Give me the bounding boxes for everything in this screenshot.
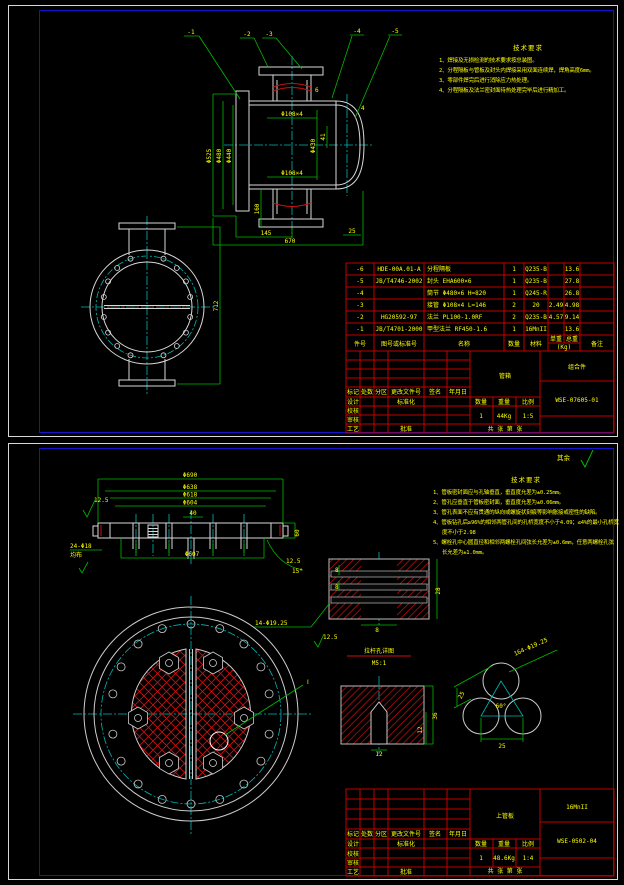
dim-36: 36	[432, 712, 439, 720]
cell-material: Q235-B	[525, 314, 547, 321]
dim-dia-mid: Φ430	[310, 138, 317, 153]
tb-weight: 48.6Kg	[493, 855, 515, 862]
tb-zone: 分区	[375, 388, 387, 396]
tb-audit: 审核	[347, 416, 359, 424]
dim-dia-inner: Φ440	[226, 148, 233, 163]
tb-count: 处数	[361, 388, 373, 396]
tech-item: 2、分程隔板与管板及封头内焊接采用双面连续焊，焊角高度6mm。	[439, 66, 617, 76]
cell-qty: 1	[512, 290, 516, 297]
th-kg: (Kg)	[557, 344, 571, 351]
detail-scale: M5:1	[372, 660, 387, 667]
tb-scale-label: 比例	[522, 398, 534, 406]
cell-total: 9.14	[565, 314, 580, 321]
roughness-12-5: 12.5	[286, 558, 301, 565]
tb-part-name: 上管板	[496, 812, 514, 820]
cell-no: -1	[356, 326, 364, 333]
cell-total: 27.8	[565, 278, 580, 285]
groove-band	[331, 584, 427, 590]
cell-qty: 1	[512, 266, 516, 273]
tb-drawing-no: WSE-0502-04	[557, 838, 597, 845]
table-row: -1 JB/T4701-2000 甲型法兰 RF450-1.6 1 16MnII…	[356, 325, 579, 333]
th-code: 图号或标准号	[381, 340, 417, 348]
cell-material: Q235-B	[525, 266, 547, 273]
cad-canvas: -1 -2 -3 -4 -5 Φ525 Φ480 Φ440 Φ108×4 Φ10…	[0, 0, 624, 885]
groove-band	[331, 597, 427, 603]
cell-total: 13.6	[565, 266, 580, 273]
dim-dia-shell: Φ480	[216, 148, 223, 163]
th-no: 件号	[354, 340, 366, 348]
th-note: 备注	[591, 340, 603, 348]
cell-qty: 2	[512, 314, 516, 321]
cell-total: 4.98	[565, 302, 580, 309]
detail-mark: Ⅰ	[307, 679, 309, 686]
tb-date: 年月日	[449, 830, 467, 838]
callout-2: -2	[243, 31, 251, 38]
dim-8: 8	[335, 584, 339, 591]
tb-scale-label: 比例	[522, 840, 534, 848]
tb-check: 校核	[347, 850, 359, 858]
th-name: 名称	[458, 340, 470, 348]
tb-standard: 标准化	[397, 398, 415, 406]
label-bolt-holes-spread: 均布	[70, 551, 82, 559]
dim-dia-604: Φ604	[183, 500, 198, 507]
table-row: -6 HDE-00A.01-A 分程隔板 1 Q235-B 13.6	[356, 265, 579, 273]
roughness-12-5: 12.5	[94, 497, 109, 504]
dim-28: 28	[435, 587, 442, 595]
th-unit: 单重	[550, 335, 562, 343]
tb-date: 年月日	[449, 388, 467, 396]
table-row: -4 筒节 Φ480×6 H=820 1 Q245-R 26.8	[356, 289, 579, 297]
dim-dia-607: Φ607	[185, 551, 200, 558]
label-rod-holes: 14-Φ19.25	[255, 620, 288, 627]
dim-25: 25	[348, 228, 356, 235]
tech-item: 5、螺栓孔中心圆直径和相邻两螺栓孔间弦长允差为±0.6mm，任意两螺栓孔弦长允差…	[433, 538, 619, 558]
th-material: 材料	[530, 340, 542, 348]
cell-total: 26.8	[565, 290, 580, 297]
cell-qty: 1	[512, 326, 516, 333]
tb-mark: 标记	[347, 830, 359, 838]
tb-qty: 1	[479, 413, 483, 420]
dim-nozzle-bottom: Φ108×4	[281, 170, 303, 177]
dim-145: 145	[261, 230, 272, 237]
tech-item: 4、分程隔板及法兰密封面待热处理完毕后进行精加工。	[439, 86, 617, 96]
dim-nozzle-height: 160	[254, 203, 261, 214]
callout-4: -4	[353, 28, 361, 35]
cell-no: -6	[356, 266, 364, 273]
tb-weight: 44Kg	[497, 413, 512, 420]
cell-name: 甲型法兰 RF450-1.6	[427, 325, 488, 333]
cell-material: Q245-R	[525, 290, 547, 297]
partition-groove-detail: 36 12 12	[341, 686, 439, 758]
tb-process: 工艺	[347, 868, 359, 876]
tech-item: 2、管孔应垂直于管板密封面，垂直度允差为±0.06mm。	[433, 498, 619, 508]
tb-pages: 共 张 第 张	[488, 867, 523, 875]
dim-670: 670	[285, 238, 296, 245]
tb-sign: 签名	[429, 830, 441, 838]
tb-kind: 组合件	[568, 363, 586, 371]
part-callouts: -1 -2 -3 -4 -5	[187, 28, 399, 38]
gasket-marks	[101, 525, 280, 536]
tb-change-doc: 更改文件号	[391, 830, 421, 838]
cell-material: 20	[532, 302, 540, 309]
tb-drawing-no: WSE-07605-01	[555, 397, 599, 404]
cell-no: -4	[356, 290, 364, 297]
cell-material: 16MnII	[525, 326, 547, 333]
label-tube-holes: 164-Φ19.25	[513, 637, 549, 658]
tb-change-doc: 更改文件号	[391, 388, 421, 396]
roughness-12-5: 12.5	[323, 634, 338, 641]
dim-gap-40: 40	[189, 510, 197, 517]
dim-nozzle-top: Φ108×4	[281, 111, 303, 118]
table-row: -5 JB/T4746-2002 封头 EHA600×6 1 Q235-B 27…	[356, 277, 579, 285]
cell-no: -5	[356, 278, 364, 285]
main-view-vessel	[236, 67, 364, 227]
dim-pitch-25: 25	[498, 743, 506, 750]
cell-name: 接管 Φ108×4 L=146	[427, 301, 486, 309]
tb-qty: 1	[479, 855, 483, 862]
tb-weight-label: 重量	[498, 398, 510, 406]
th-qty: 数量	[508, 340, 520, 348]
groove-band	[331, 571, 427, 577]
cell-qty: 2	[512, 302, 516, 309]
tb-standard: 标准化	[397, 840, 415, 848]
cell-name: 筒节 Φ480×6 H=820	[427, 289, 486, 297]
cell-unit: 2.49	[549, 302, 564, 309]
cell-name: 法兰 PL100-1.0RF	[427, 313, 483, 321]
titleblock-text: 标记 处数 分区 更改文件号 签名 年月日 设计 标准化 校核 审核 工艺 批准…	[347, 804, 597, 876]
cell-total: 13.6	[565, 326, 580, 333]
table-row: -3 接管 Φ108×4 L=146 2 20 2.49 4.98	[356, 301, 579, 309]
dim-angle-60: 60°	[496, 703, 507, 710]
tb-zone: 分区	[375, 830, 387, 838]
centerlines	[81, 56, 373, 396]
pitch-dim-labels: 25 25 60° 164-Φ19.25	[457, 637, 549, 750]
rest-label: 其余	[557, 452, 570, 462]
dim-head-thk: 4	[361, 105, 365, 112]
dim-dia-618: Φ618	[183, 492, 198, 499]
tech-item: 1、管板密封面应与孔轴垂直，垂直度允差为±0.25mm。	[433, 488, 619, 498]
callout-3: -3	[265, 31, 273, 38]
tech-title: 技术要求	[433, 474, 619, 484]
tb-sign: 签名	[429, 388, 441, 396]
tb-part-name: 管箱	[499, 372, 511, 380]
tube-pitch-detail: 25 25 60° 164-Φ19.25	[454, 637, 557, 750]
dim-dia-690: Φ690	[183, 472, 198, 479]
cell-code: JB/T4746-2002	[376, 278, 423, 285]
sheet2-paper: Φ690 Φ638 Φ618 Φ604 Φ607 60 40 12.5 24-Φ…	[8, 443, 618, 880]
tb-material: 16MnII	[566, 804, 588, 811]
label-bolt-holes: 24-Φ18	[70, 543, 92, 550]
dimension-labels: Φ525 Φ480 Φ440 Φ108×4 Φ108×4 6 4 Φ430 41…	[206, 87, 365, 311]
tb-weight-label: 重量	[498, 840, 510, 848]
dim-shell-thk: 6	[315, 87, 319, 94]
tech-item: 3、管孔表面不应有贯通的纵向或螺旋状刻痕等影响胀接或密性的缺陷。	[433, 508, 619, 518]
tb-scale: 1:5	[523, 413, 534, 420]
cell-code: HG20592-97	[381, 314, 418, 321]
cell-code: JB/T4701-2000	[376, 326, 423, 333]
dim-12: 12	[417, 726, 424, 734]
tb-count: 处数	[361, 830, 373, 838]
dim-dia-flange: Φ525	[206, 148, 213, 163]
dim-pitch-25: 25	[457, 690, 467, 700]
tb-check: 校核	[347, 407, 359, 415]
tb-qty-label: 数量	[475, 840, 487, 848]
tb-design: 设计	[347, 398, 359, 406]
titleblock-text: 标记 处数 分区 更改文件号 签名 年月日 设计 标准化 校核 审核 工艺 批准…	[347, 363, 599, 433]
tb-approve: 批准	[400, 868, 412, 876]
tech-requirements: 技术要求 1、管板密封面应与孔轴垂直，垂直度允差为±0.25mm。 2、管孔应垂…	[433, 474, 619, 558]
rod-hole-detail: 8 8 28 8 14-Φ19.25 12.5 拉杆孔详图 M5:1	[254, 559, 442, 667]
cell-unit: 4.57	[549, 314, 564, 321]
tech-item: 3、零部件焊完后进行消除应力热处理。	[439, 76, 617, 86]
tb-process: 工艺	[347, 425, 359, 433]
table-row: -2 HG20592-97 法兰 PL100-1.0RF 2 Q235-B 4.…	[356, 313, 579, 321]
tb-approve: 批准	[400, 425, 412, 433]
tech-item: 4、管板钻孔后≥96%的相邻两管孔间的孔桥宽度不小于4.09；≤4%的最小孔桥宽…	[433, 518, 619, 538]
dim-8: 8	[335, 567, 339, 574]
surface-finish-icon	[581, 450, 593, 467]
tb-pages: 共 张 第 张	[488, 425, 523, 433]
tb-mark: 标记	[347, 388, 359, 396]
th-total: 总重	[566, 335, 578, 343]
dim-12: 12	[375, 751, 383, 758]
tech-title: 技术要求	[439, 42, 617, 52]
cell-qty: 1	[512, 278, 516, 285]
dim-8: 8	[375, 627, 379, 634]
tb-qty-label: 数量	[475, 398, 487, 406]
cell-name: 封头 EHA600×6	[427, 277, 472, 285]
tb-design: 设计	[347, 840, 359, 848]
dim-dia-638: Φ638	[183, 484, 198, 491]
dim-thk-60: 60	[294, 529, 301, 537]
cell-code: HDE-00A.01-A	[377, 266, 421, 273]
tb-audit: 审核	[347, 859, 359, 867]
tech-item: 1、焊接及无损检测的技术要求按总装图。	[439, 56, 617, 66]
groove-slot	[371, 702, 387, 744]
detail-caption: 拉杆孔详图	[364, 647, 394, 655]
cell-no: -2	[356, 314, 364, 321]
cell-name: 分程隔板	[427, 265, 451, 273]
cell-material: Q235-B	[525, 278, 547, 285]
dim-angle-15: 15°	[292, 568, 303, 575]
sheet1-paper: -1 -2 -3 -4 -5 Φ525 Φ480 Φ440 Φ108×4 Φ10…	[8, 5, 618, 437]
dim-712: 712	[213, 300, 220, 311]
tb-scale: 1:4	[523, 855, 534, 862]
callout-5: -5	[391, 28, 399, 35]
dim-41: 41	[320, 133, 327, 141]
cell-no: -3	[356, 302, 364, 309]
tech-requirements: 技术要求 1、焊接及无损检测的技术要求按总装图。 2、分程隔板与管板及封头内焊接…	[439, 42, 617, 96]
callout-1: -1	[187, 29, 195, 36]
